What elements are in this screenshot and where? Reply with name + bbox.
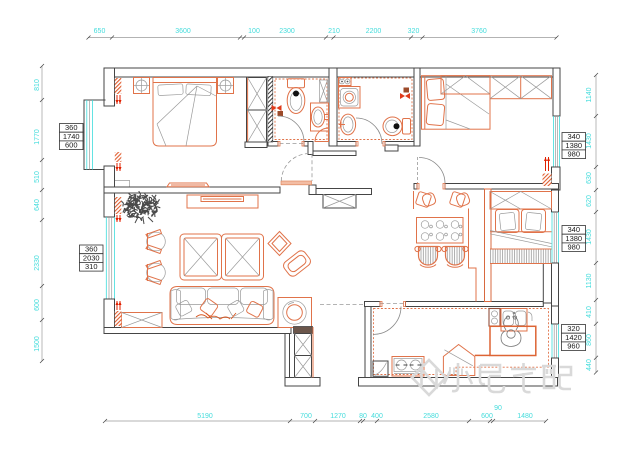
svg-text:340: 340 (567, 132, 580, 141)
svg-text:80: 80 (359, 413, 367, 420)
svg-text:210: 210 (328, 28, 340, 35)
svg-text:1430: 1430 (586, 133, 593, 149)
svg-text:1380: 1380 (565, 234, 582, 243)
svg-text:980: 980 (567, 150, 580, 159)
svg-text:1420: 1420 (565, 333, 582, 342)
svg-text:1770: 1770 (34, 129, 41, 145)
svg-text:2300: 2300 (279, 28, 295, 35)
svg-text:1270: 1270 (330, 413, 346, 420)
svg-text:3600: 3600 (175, 28, 191, 35)
svg-text:600: 600 (34, 299, 41, 311)
svg-text:600: 600 (481, 413, 493, 420)
svg-text:700: 700 (300, 413, 312, 420)
svg-text:1140: 1140 (586, 87, 593, 102)
svg-text:960: 960 (567, 342, 580, 351)
svg-text:3760: 3760 (471, 28, 487, 35)
svg-text:640: 640 (34, 199, 41, 211)
svg-text:340: 340 (567, 225, 580, 234)
svg-text:810: 810 (34, 79, 41, 91)
svg-text:980: 980 (567, 243, 580, 252)
svg-text:90: 90 (494, 405, 502, 412)
svg-text:1430: 1430 (586, 229, 593, 245)
svg-text:1480: 1480 (517, 413, 533, 420)
svg-text:320: 320 (567, 324, 580, 333)
svg-text:2030: 2030 (83, 253, 100, 262)
svg-text:860: 860 (586, 334, 593, 346)
svg-text:510: 510 (34, 171, 41, 183)
svg-text:1740: 1740 (63, 132, 80, 141)
svg-text:630: 630 (586, 172, 593, 184)
svg-text:2200: 2200 (366, 28, 382, 35)
svg-text:440: 440 (586, 359, 593, 371)
svg-text:400: 400 (371, 413, 383, 420)
svg-text:600: 600 (65, 141, 78, 150)
svg-text:100: 100 (248, 28, 260, 35)
svg-text:360: 360 (65, 123, 78, 132)
svg-text:1130: 1130 (586, 273, 593, 288)
svg-text:2580: 2580 (423, 413, 439, 420)
svg-text:1380: 1380 (565, 141, 582, 150)
svg-text:410: 410 (586, 306, 593, 318)
svg-text:310: 310 (85, 262, 98, 271)
svg-text:1500: 1500 (34, 336, 41, 352)
svg-text:5190: 5190 (197, 413, 213, 420)
svg-text:2330: 2330 (34, 255, 41, 271)
svg-text:650: 650 (94, 28, 106, 35)
svg-text:360: 360 (85, 245, 98, 254)
svg-text:320: 320 (408, 28, 420, 35)
svg-text:620: 620 (586, 195, 593, 207)
